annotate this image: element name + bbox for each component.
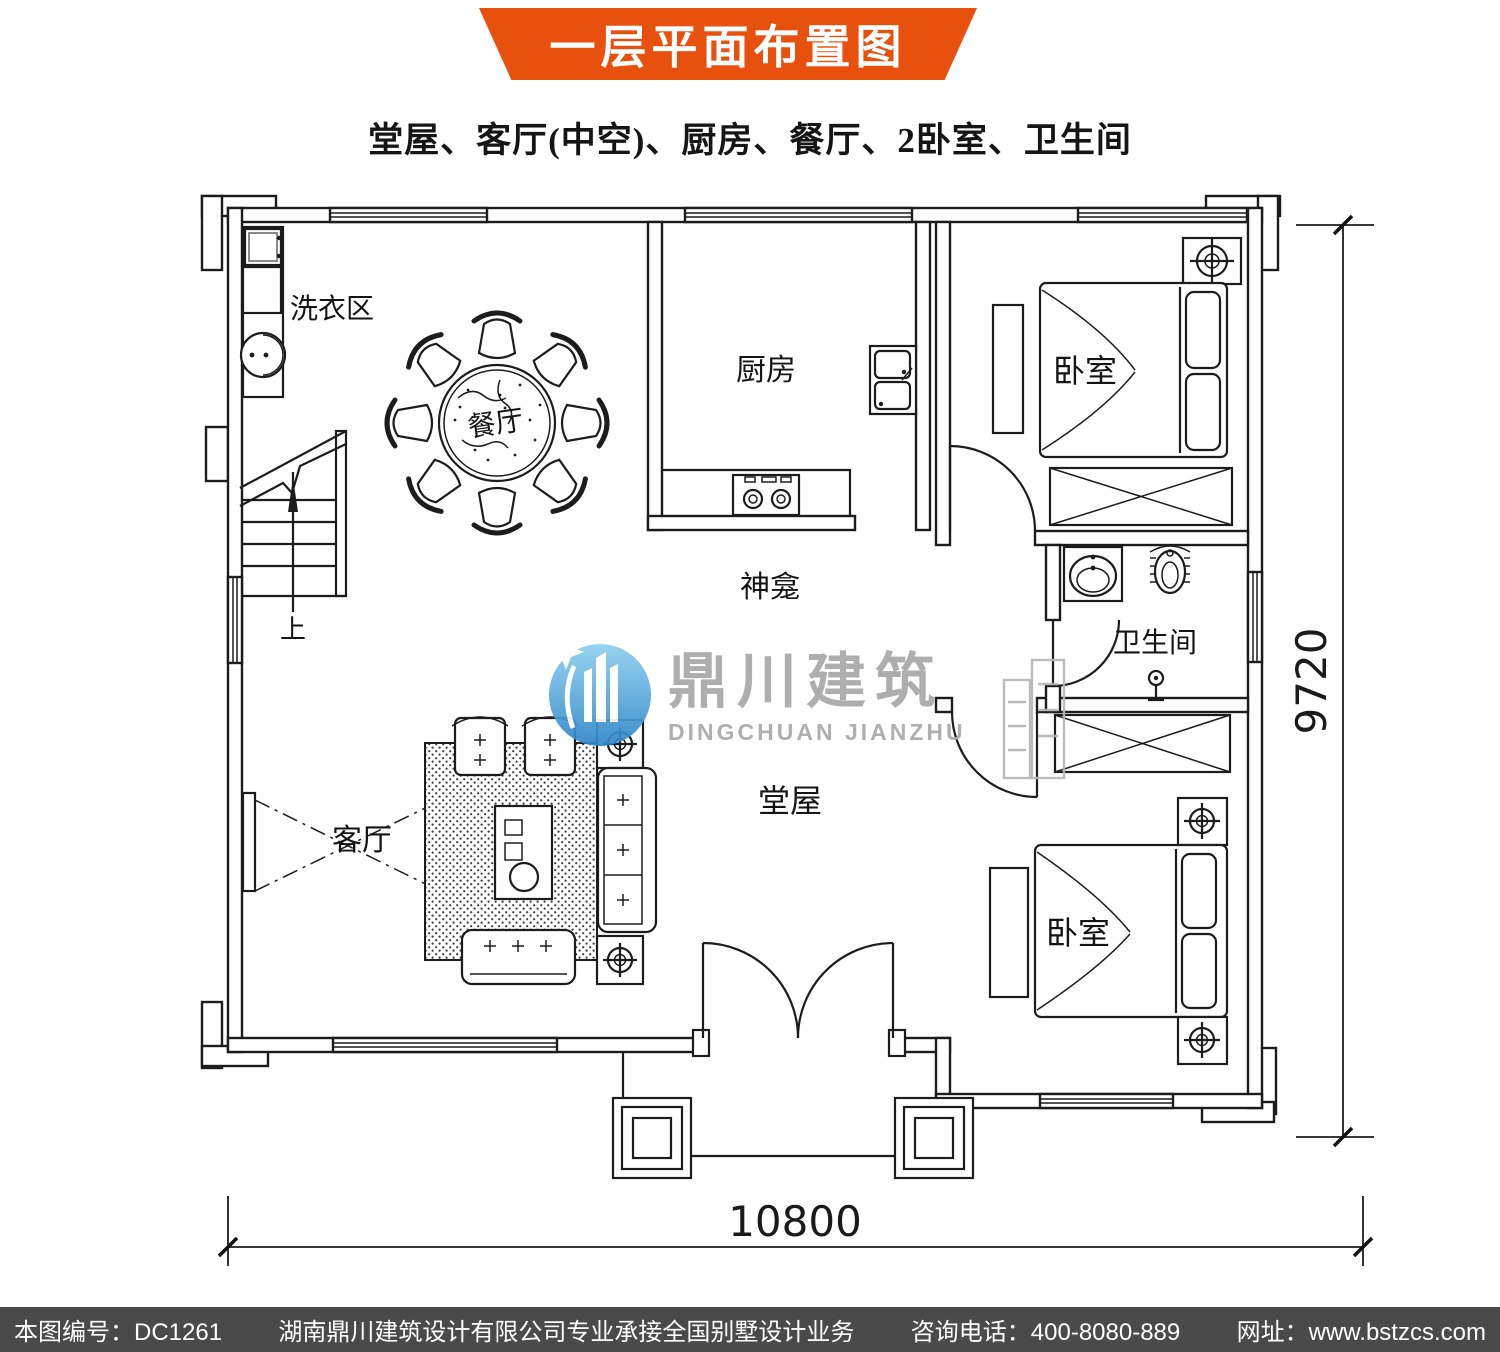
laundry-area [241, 227, 285, 397]
basin [1064, 547, 1122, 601]
kitchen-sink [870, 346, 916, 414]
label-bedroom-top: 卧室 [1053, 353, 1117, 389]
footer-company: 湖南鼎川建筑设计有限公司专业承接全国别墅设计业务 [278, 1312, 854, 1347]
label-living: 客厅 [332, 824, 392, 857]
wardrobe [1050, 468, 1232, 525]
entry-double-door [693, 943, 905, 1056]
sofa [598, 768, 656, 932]
squat-toilet [1150, 546, 1190, 593]
label-bathroom: 卫生间 [1113, 627, 1197, 659]
page: 一层平面布置图 堂屋、客厅(中空)、厨房、餐厅、2卧室、卫生间 [0, 0, 1500, 1352]
porch-column [895, 1098, 973, 1178]
dresser [993, 305, 1023, 433]
dim-width: 10800 [728, 1197, 862, 1246]
window-left [228, 577, 242, 663]
watermark-en: DINGCHUAN JIANZHU [668, 719, 966, 745]
watermark-cn: 鼎川建筑 [668, 649, 944, 715]
dimension-bottom: 10800 [219, 1196, 1372, 1266]
bedroom-top-door [950, 446, 1035, 531]
footer-phone: 咨询电话：400-8080-889 [911, 1312, 1180, 1347]
laundry-sink [241, 333, 285, 377]
stove [733, 475, 799, 515]
label-shrine: 神龛 [740, 571, 800, 604]
window-bottom-bedroom [1040, 1094, 1173, 1108]
floor-plan-area: 鼎川建筑 DINGCHUAN JIANZHU 洗衣区 餐厅 厨房 神龛 卧室 卫… [0, 0, 1500, 1352]
label-bedroom-bottom: 卧室 [1046, 915, 1110, 951]
bedroom-bottom [990, 715, 1230, 1064]
footer-bar: 本图编号：DC1261 湖南鼎川建筑设计有限公司专业承接全国别墅设计业务 咨询电… [0, 1307, 1500, 1352]
window-right-bathroom [1248, 572, 1262, 662]
dim-height: 9720 [1287, 628, 1336, 735]
bench [462, 930, 575, 984]
window-top-1 [330, 208, 487, 222]
dresser [990, 868, 1028, 997]
label-stairs-up: 上 [280, 615, 306, 644]
side-table-lamp [597, 936, 643, 984]
label-laundry: 洗衣区 [290, 293, 374, 325]
window-bottom-living [333, 1038, 557, 1052]
footer-plan-number: 本图编号：DC1261 [14, 1312, 222, 1347]
footer-website: 网址：www.bstzcs.com [1237, 1312, 1486, 1347]
wardrobe [1055, 715, 1230, 772]
label-hall: 堂屋 [758, 783, 822, 819]
nightstand-lamp [1178, 798, 1227, 845]
nightstand-lamp [1178, 1017, 1227, 1064]
porch [613, 1052, 973, 1178]
floor-plan: 鼎川建筑 DINGCHUAN JIANZHU 洗衣区 餐厅 厨房 神龛 卧室 卫… [0, 0, 1500, 1352]
window-top-2 [685, 208, 912, 222]
living-room [243, 717, 656, 984]
dimension-right: 9720 [1287, 216, 1374, 1146]
window-top-3 [1078, 208, 1247, 222]
porch-column [613, 1098, 691, 1178]
washing-machine [245, 229, 281, 265]
armchair [452, 717, 508, 775]
stairs [240, 431, 346, 612]
floor-drain [1148, 671, 1164, 700]
bathroom [1064, 546, 1190, 700]
ceiling-lamp [1183, 238, 1241, 284]
coffee-table [495, 806, 552, 899]
label-kitchen: 厨房 [736, 354, 796, 387]
